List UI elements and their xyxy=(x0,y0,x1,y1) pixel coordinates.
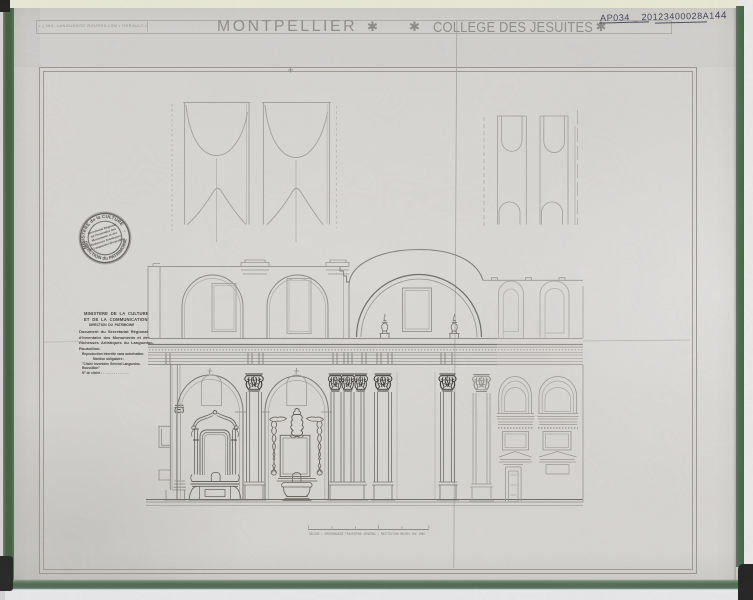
svg-text:·: · xyxy=(123,229,127,235)
